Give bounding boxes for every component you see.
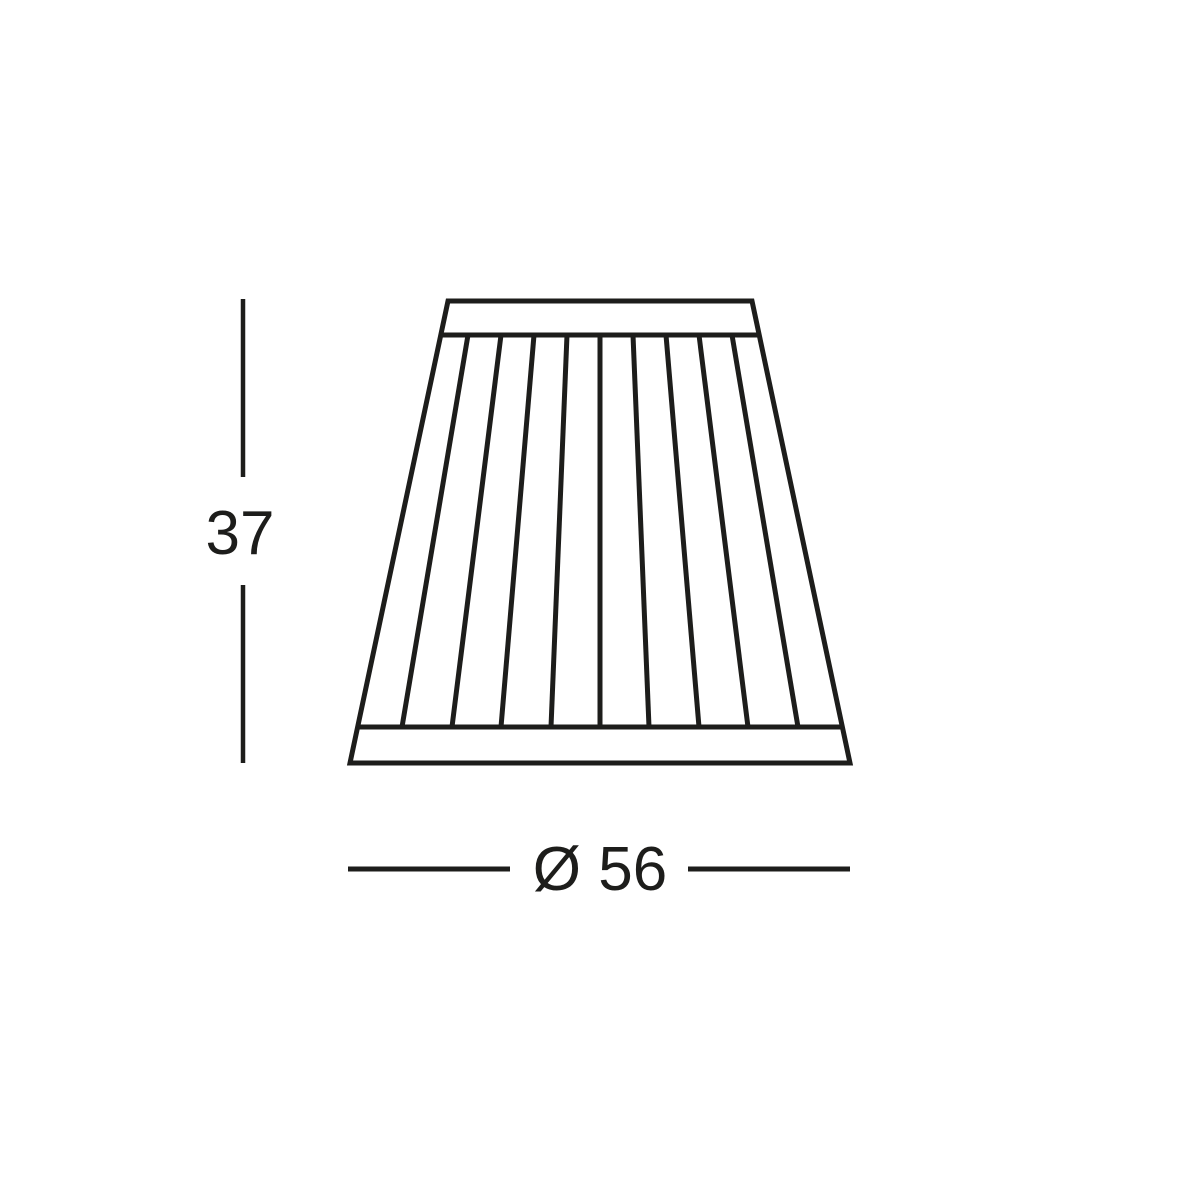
diameter-dimension-label: Ø 56 (533, 835, 667, 904)
height-dimension-label: 37 (206, 499, 275, 568)
pleat-line (501, 335, 534, 727)
lampshade-technical-diagram: 37 Ø 56 (0, 0, 1200, 1200)
dimension-lines (243, 299, 850, 869)
shade-drawing (350, 301, 850, 763)
pleat-line (633, 335, 649, 727)
pleat-line (551, 335, 567, 727)
pleat-line (666, 335, 699, 727)
pleat-lines (402, 335, 798, 727)
drawing-canvas: 37 Ø 56 (0, 0, 1200, 1200)
